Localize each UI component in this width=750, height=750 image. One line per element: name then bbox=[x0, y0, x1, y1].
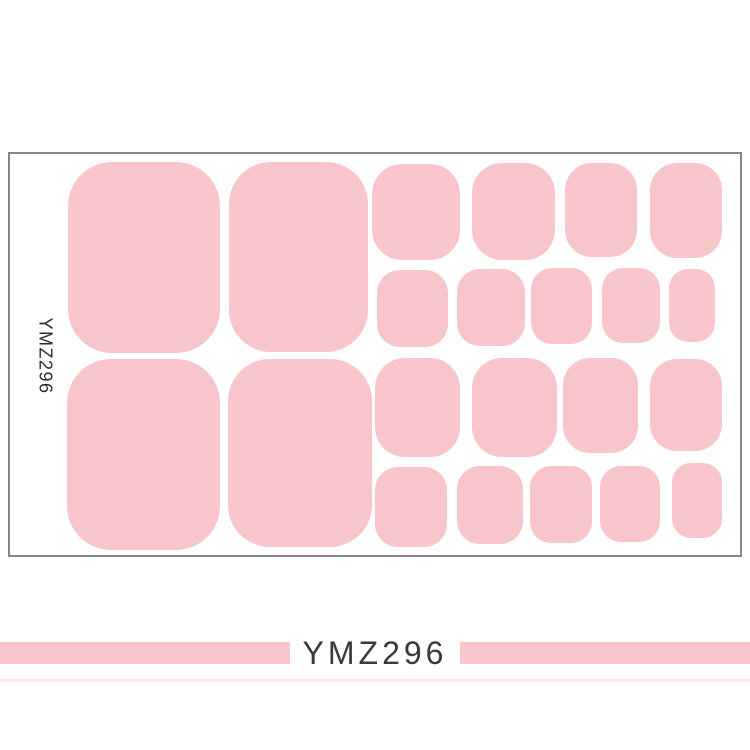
nail-sticker-medium-a4 bbox=[650, 163, 722, 258]
nail-sticker-medium-c2 bbox=[472, 358, 557, 457]
nail-sticker-medium-c3 bbox=[563, 358, 638, 453]
nail-sticker-small-d4 bbox=[600, 466, 660, 542]
product-code-banner: YMZ296 bbox=[0, 629, 750, 677]
nail-sticker-big-toe-1 bbox=[68, 162, 220, 353]
nail-sticker-big-toe-3 bbox=[67, 359, 220, 550]
sheet-code-vertical-label: YMZ296 bbox=[35, 317, 56, 394]
nail-sticker-medium-c4 bbox=[650, 359, 722, 451]
product-code-text: YMZ296 bbox=[290, 637, 461, 669]
nail-sticker-medium-a2 bbox=[472, 163, 555, 260]
nail-sticker-big-toe-4 bbox=[228, 359, 372, 547]
nail-sticker-small-b3 bbox=[531, 268, 592, 344]
nail-sticker-small-b5 bbox=[669, 269, 715, 342]
nail-sticker-small-b1 bbox=[377, 270, 448, 347]
page: YMZ296 YMZ296 bbox=[0, 0, 750, 750]
nail-sticker-small-d3 bbox=[530, 466, 592, 543]
nail-sticker-medium-a1 bbox=[372, 164, 460, 260]
banner-bar-right bbox=[460, 642, 750, 664]
nail-sticker-small-d2 bbox=[457, 466, 523, 544]
faint-pink-line bbox=[0, 679, 750, 682]
nail-sticker-big-toe-2 bbox=[229, 162, 368, 352]
nail-sticker-small-b4 bbox=[602, 268, 660, 343]
nail-sticker-small-d1 bbox=[375, 467, 447, 547]
banner-bar-left bbox=[0, 642, 290, 664]
nail-sticker-small-b2 bbox=[457, 269, 525, 346]
nail-sticker-medium-a3 bbox=[565, 163, 637, 257]
nail-sticker-medium-c1 bbox=[375, 358, 460, 457]
nail-sticker-small-d5 bbox=[672, 463, 722, 538]
